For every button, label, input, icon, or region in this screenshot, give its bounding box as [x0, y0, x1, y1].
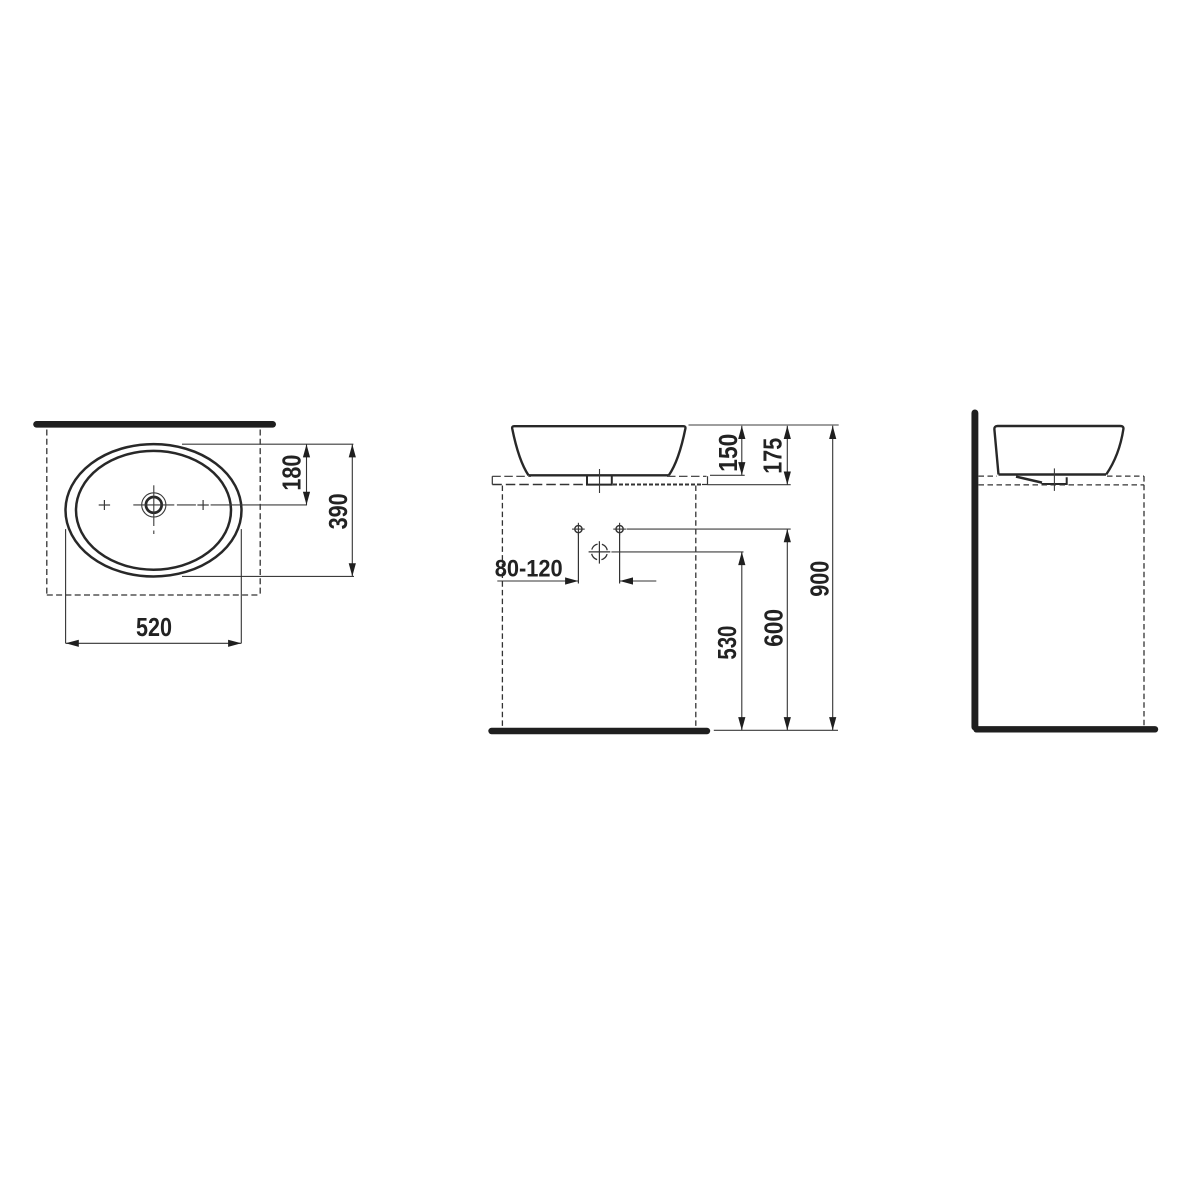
svg-text:150: 150 — [713, 434, 743, 472]
svg-text:390: 390 — [323, 493, 353, 529]
svg-text:600: 600 — [759, 609, 789, 647]
svg-text:175: 175 — [757, 438, 787, 474]
svg-text:180: 180 — [276, 455, 306, 491]
svg-text:900: 900 — [804, 561, 834, 597]
svg-text:80-120: 80-120 — [495, 556, 563, 583]
svg-text:520: 520 — [136, 612, 172, 642]
svg-text:530: 530 — [712, 626, 742, 660]
